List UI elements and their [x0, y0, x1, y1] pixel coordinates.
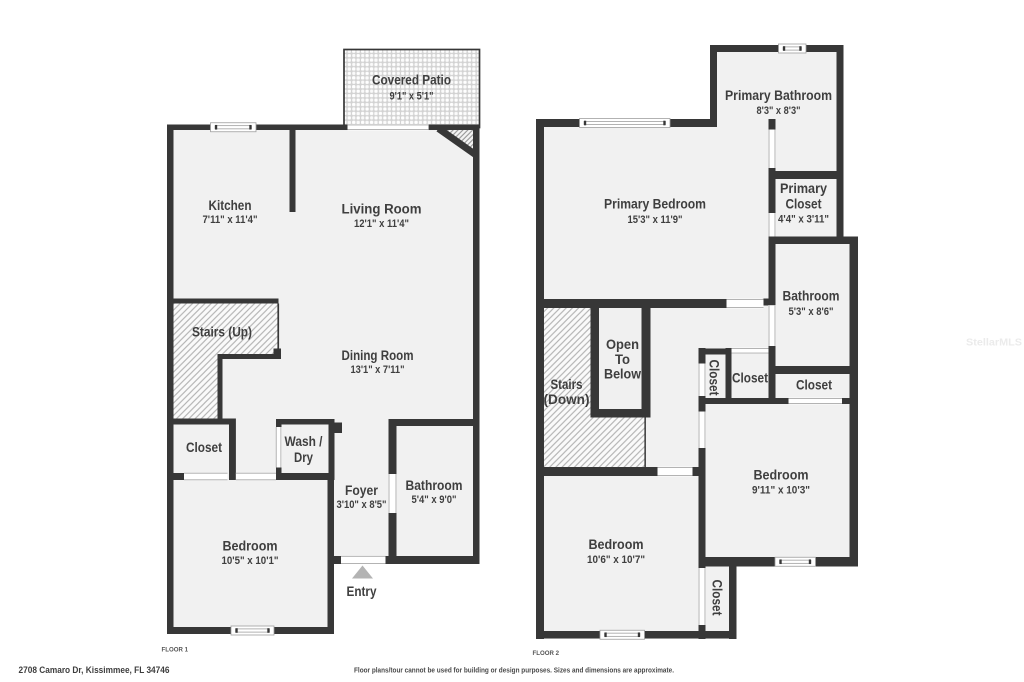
svg-text:Closet: Closet — [710, 580, 725, 616]
svg-text:StellarMLS: StellarMLS — [966, 337, 1022, 349]
svg-text:Kitchen: Kitchen — [209, 198, 252, 214]
svg-text:Living Room: Living Room — [342, 202, 422, 218]
svg-text:9'1" x 5'1": 9'1" x 5'1" — [390, 91, 434, 103]
svg-text:Wash /: Wash / — [285, 434, 323, 449]
svg-text:FLOOR 1: FLOOR 1 — [162, 647, 189, 654]
svg-text:Primary: Primary — [780, 181, 827, 196]
svg-text:Stairs: Stairs — [551, 377, 583, 392]
svg-text:FLOOR 2: FLOOR 2 — [533, 650, 560, 657]
svg-text:10'6" x 10'7": 10'6" x 10'7" — [587, 554, 645, 566]
svg-text:(Down): (Down) — [544, 392, 590, 407]
svg-text:7'11" x 11'4": 7'11" x 11'4" — [203, 214, 258, 226]
svg-text:Primary Bathroom: Primary Bathroom — [725, 88, 832, 104]
svg-text:Below: Below — [604, 367, 641, 382]
svg-text:Floor plans/tour cannot be use: Floor plans/tour cannot be used for buil… — [354, 668, 674, 675]
svg-text:12'1" x 11'4": 12'1" x 11'4" — [354, 218, 409, 230]
svg-text:Stairs (Up): Stairs (Up) — [192, 325, 252, 340]
svg-text:Dining Room: Dining Room — [342, 348, 414, 364]
svg-text:5'4" x 9'0": 5'4" x 9'0" — [412, 494, 457, 506]
svg-text:Closet: Closet — [796, 378, 832, 393]
svg-text:4'4" x 3'11": 4'4" x 3'11" — [778, 214, 829, 226]
svg-text:Primary Bedroom: Primary Bedroom — [604, 197, 706, 213]
svg-text:Bathroom: Bathroom — [406, 478, 463, 493]
svg-text:Closet: Closet — [786, 197, 822, 212]
svg-text:To: To — [615, 352, 630, 367]
svg-text:8'3" x 8'3": 8'3" x 8'3" — [757, 105, 801, 117]
svg-text:Covered Patio: Covered Patio — [372, 73, 451, 89]
svg-text:Bathroom: Bathroom — [783, 289, 840, 304]
svg-text:Entry: Entry — [347, 584, 377, 599]
svg-text:15'3" x 11'9": 15'3" x 11'9" — [628, 214, 683, 226]
svg-text:Open: Open — [606, 337, 639, 352]
svg-text:Bedroom: Bedroom — [223, 539, 278, 555]
svg-text:10'5" x 10'1": 10'5" x 10'1" — [222, 555, 279, 567]
svg-text:5'3" x 8'6": 5'3" x 8'6" — [789, 306, 834, 318]
svg-text:13'1" x 7'11": 13'1" x 7'11" — [351, 364, 405, 376]
svg-text:2708 Camaro Dr, Kissimmee, FL: 2708 Camaro Dr, Kissimmee, FL 34746 — [19, 665, 170, 675]
svg-text:Closet: Closet — [186, 440, 222, 455]
svg-text:Bedroom: Bedroom — [754, 468, 809, 484]
svg-text:Dry: Dry — [294, 450, 313, 465]
svg-text:Foyer: Foyer — [345, 483, 379, 498]
svg-text:3'10" x 8'5": 3'10" x 8'5" — [337, 499, 387, 511]
svg-text:Closet: Closet — [707, 360, 722, 396]
svg-text:9'11" x 10'3": 9'11" x 10'3" — [752, 485, 810, 497]
svg-text:Bedroom: Bedroom — [589, 537, 644, 553]
svg-text:Closet: Closet — [732, 371, 768, 386]
